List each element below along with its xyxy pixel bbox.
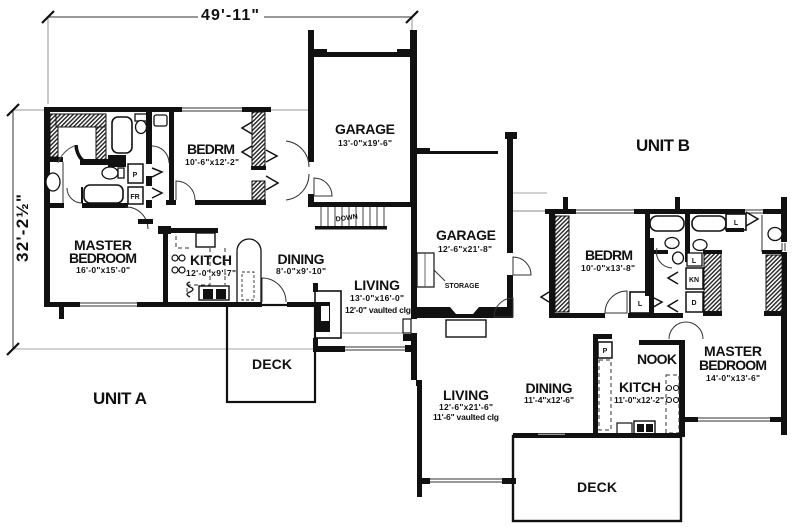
svg-text:STORAGE: STORAGE bbox=[445, 283, 480, 290]
svg-text:12'-0" vaulted clg: 12'-0" vaulted clg bbox=[345, 305, 411, 315]
svg-text:P: P bbox=[603, 348, 608, 355]
svg-text:P: P bbox=[133, 172, 138, 179]
svg-text:D: D bbox=[691, 300, 696, 307]
svg-text:12'-0"x9'-7": 12'-0"x9'-7" bbox=[186, 268, 236, 278]
svg-text:13'-0"x19'-6": 13'-0"x19'-6" bbox=[338, 138, 392, 148]
svg-text:16'-0"x15'-0": 16'-0"x15'-0" bbox=[76, 265, 130, 275]
svg-text:KITCH: KITCH bbox=[619, 379, 661, 395]
svg-text:L: L bbox=[734, 220, 739, 227]
svg-text:10'-0"x13'-8": 10'-0"x13'-8" bbox=[581, 263, 635, 273]
svg-text:GARAGE: GARAGE bbox=[436, 227, 496, 243]
svg-text:14'-0"x13'-6": 14'-0"x13'-6" bbox=[706, 373, 760, 383]
svg-text:BEDROOM: BEDROOM bbox=[69, 250, 137, 266]
svg-text:BEDRM: BEDRM bbox=[187, 141, 235, 157]
svg-text:LIVING: LIVING bbox=[354, 277, 400, 293]
svg-text:BEDRM: BEDRM bbox=[585, 247, 633, 263]
svg-text:KN: KN bbox=[689, 277, 699, 284]
svg-text:UNIT A: UNIT A bbox=[93, 389, 147, 408]
svg-text:NOOK: NOOK bbox=[637, 351, 677, 367]
svg-text:32'-2½": 32'-2½" bbox=[13, 194, 32, 262]
svg-text:L: L bbox=[692, 258, 697, 265]
svg-text:DINING: DINING bbox=[526, 380, 573, 396]
svg-text:KITCH: KITCH bbox=[190, 252, 232, 268]
svg-text:12'-6"x21'-8": 12'-6"x21'-8" bbox=[438, 244, 492, 254]
svg-text:11'-4"x12'-6": 11'-4"x12'-6" bbox=[524, 395, 574, 405]
svg-text:12'-6"x21'-6": 12'-6"x21'-6" bbox=[439, 402, 493, 412]
svg-text:8'-0"x9'-10": 8'-0"x9'-10" bbox=[276, 266, 326, 276]
svg-text:LIVING: LIVING bbox=[443, 387, 489, 403]
svg-text:11'-6" vaulted clg: 11'-6" vaulted clg bbox=[433, 412, 499, 422]
svg-text:BEDROOM: BEDROOM bbox=[699, 357, 767, 373]
svg-text:GARAGE: GARAGE bbox=[335, 121, 395, 137]
svg-text:L: L bbox=[638, 301, 643, 308]
svg-text:DINING: DINING bbox=[278, 251, 325, 267]
svg-text:UNIT B: UNIT B bbox=[636, 136, 690, 155]
svg-text:DECK: DECK bbox=[577, 479, 617, 495]
svg-text:DECK: DECK bbox=[252, 356, 292, 372]
svg-text:10'-6"x12'-2": 10'-6"x12'-2" bbox=[185, 157, 239, 167]
svg-text:FR: FR bbox=[130, 194, 139, 201]
svg-text:49'-11": 49'-11" bbox=[201, 7, 259, 24]
svg-text:11'-0"x12'-2": 11'-0"x12'-2" bbox=[614, 395, 664, 405]
svg-text:13'-0"x16'-0": 13'-0"x16'-0" bbox=[350, 293, 404, 303]
